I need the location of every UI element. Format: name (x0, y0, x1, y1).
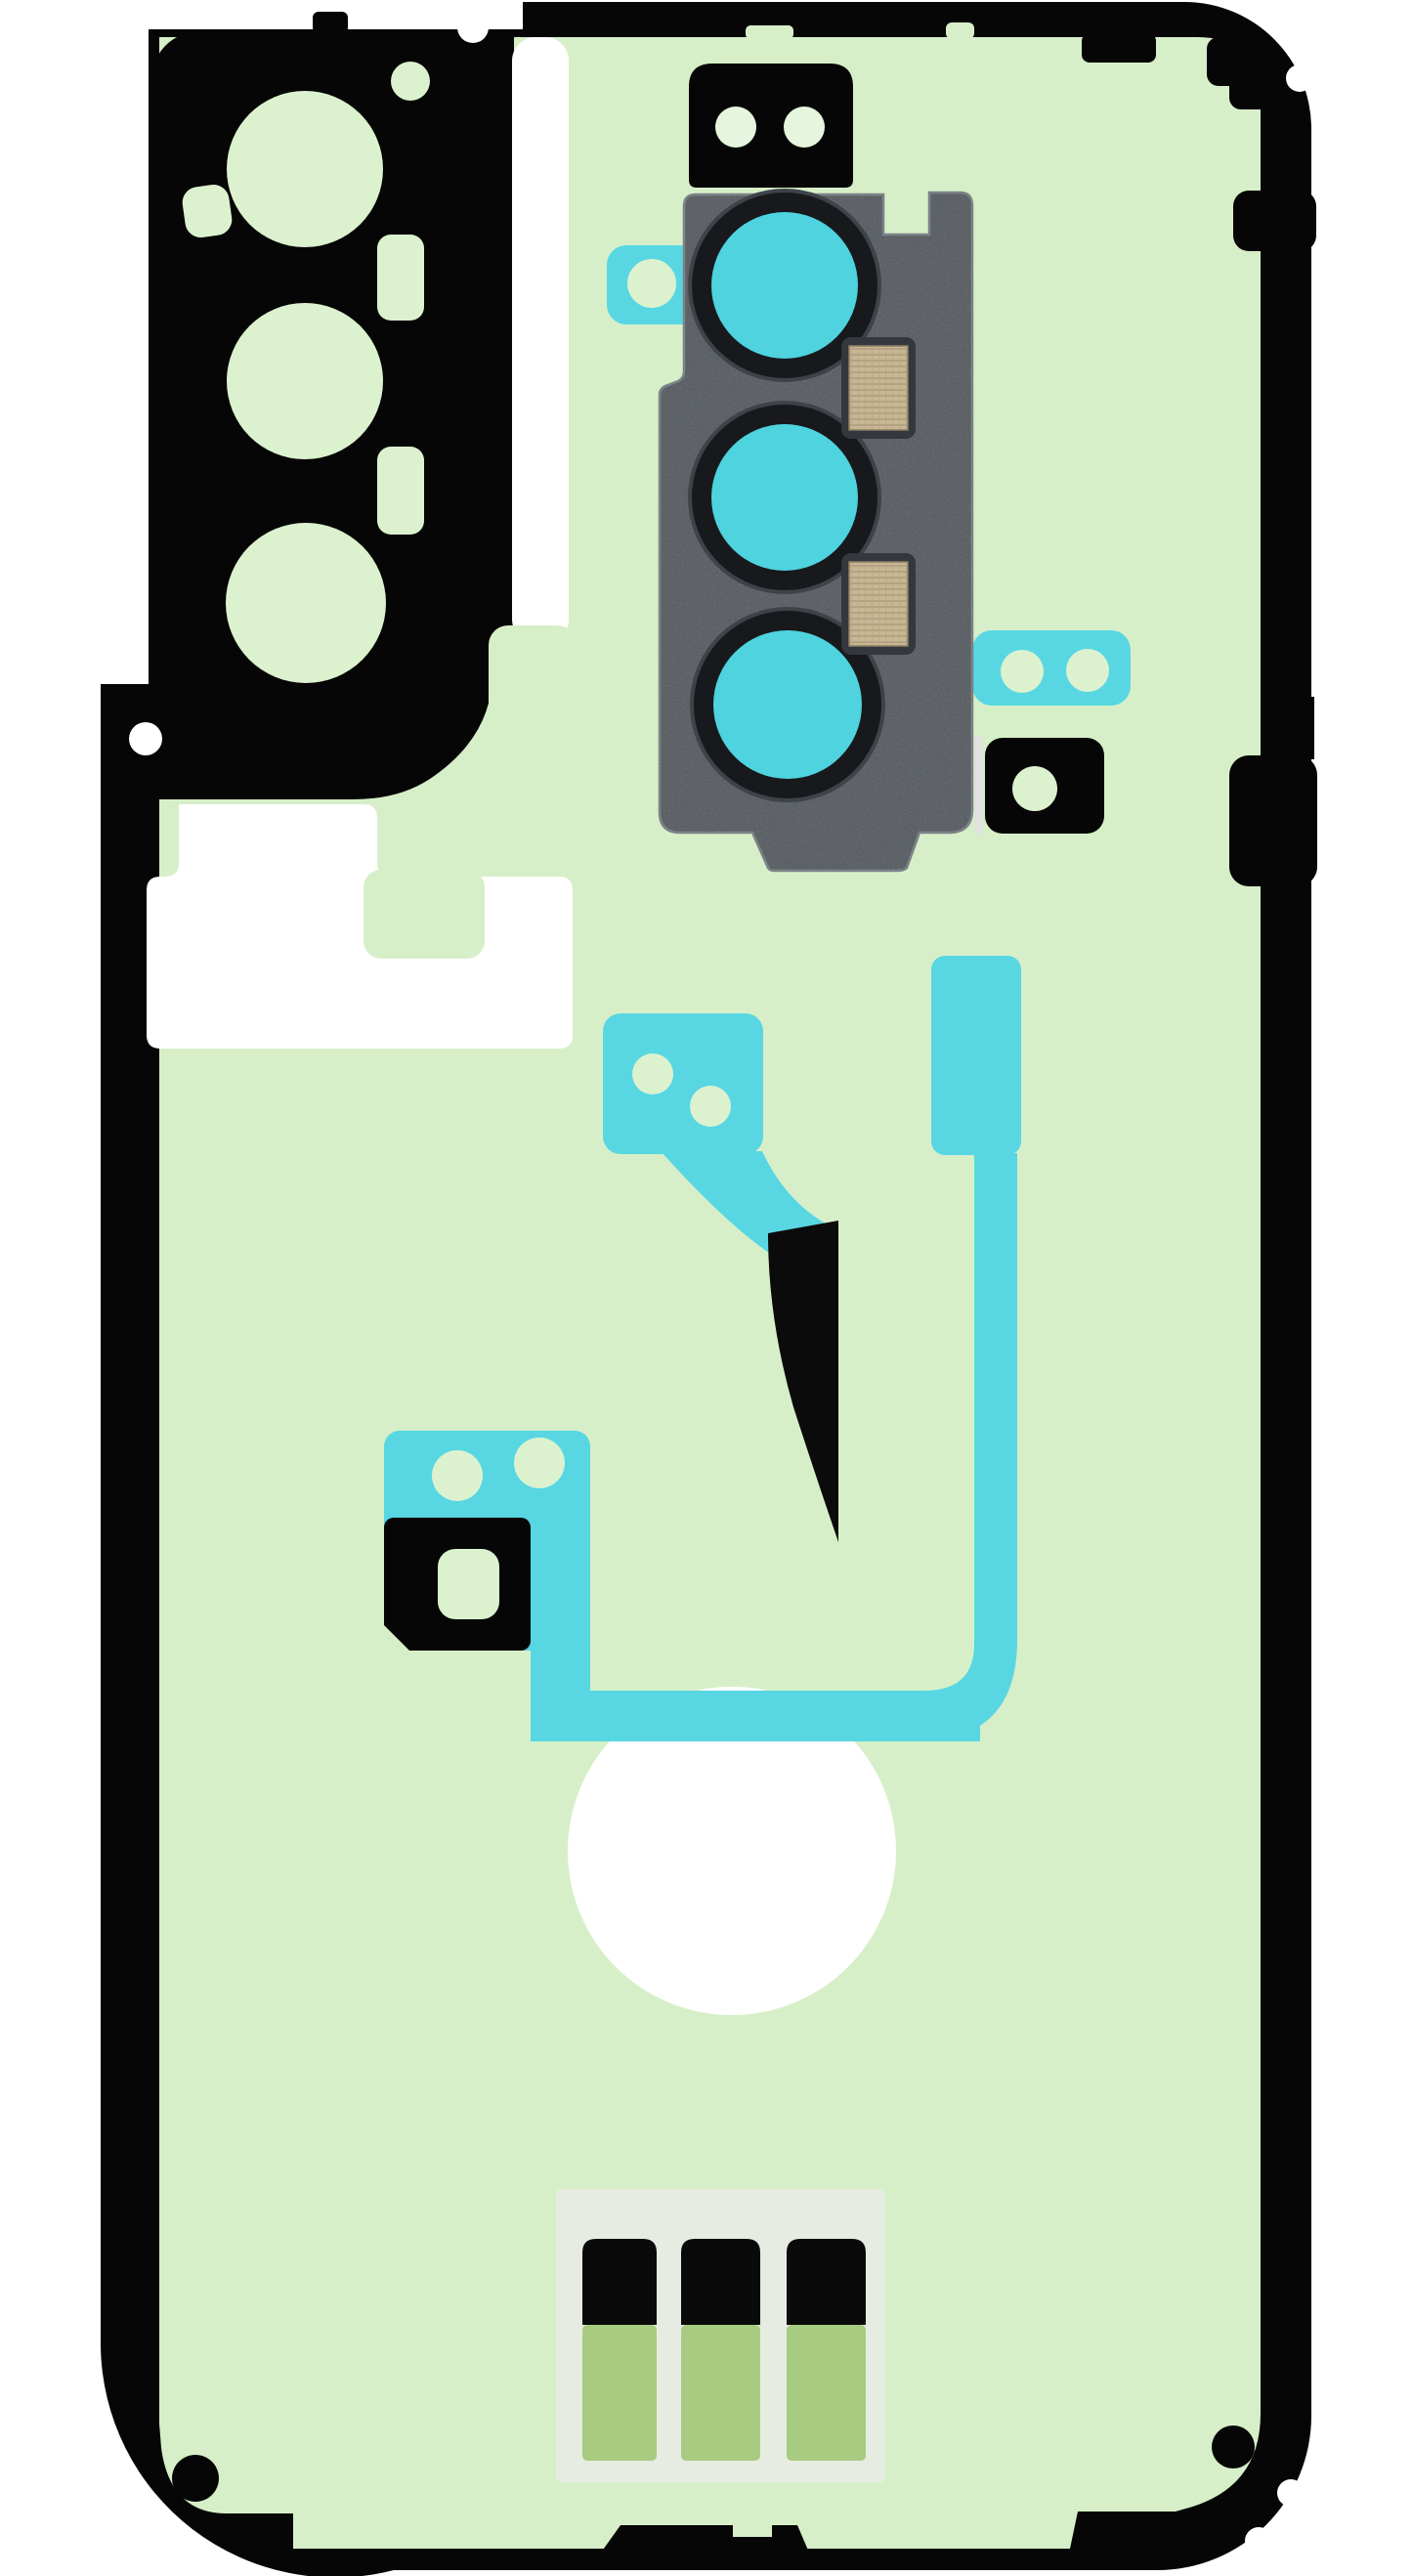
lens-glass (711, 212, 858, 359)
sticker-dot (715, 107, 756, 148)
corner-knob (172, 2455, 219, 2502)
adhesive-strip (681, 2239, 760, 2461)
flex-tab-right (972, 630, 1131, 706)
edge-nick (1245, 2527, 1272, 2555)
flex-hole (1066, 649, 1109, 692)
sticker-dot (784, 107, 825, 148)
top-edge-bump (746, 25, 793, 39)
black-spacer-lower-left (384, 1518, 531, 1651)
black-spacer-right (985, 738, 1104, 834)
camera-glass-sticker (689, 64, 853, 188)
flex-hole (514, 1438, 565, 1488)
edge-notch (457, 12, 489, 43)
sensor-hole (181, 183, 235, 239)
film-tongue (364, 870, 485, 959)
lens-hole (227, 303, 383, 459)
right-edge-notch (1233, 191, 1316, 251)
corner-knob (1212, 2426, 1255, 2469)
camera-lens-module (635, 166, 997, 889)
white-slot-cutout (512, 37, 569, 643)
right-edge-notch (1229, 755, 1317, 886)
lens-glass (713, 630, 862, 779)
left-white-gap (0, 0, 149, 684)
edge-nick (1277, 2479, 1305, 2507)
corner-step (1229, 61, 1272, 109)
edge-nick (142, 2527, 169, 2555)
film-strip (489, 625, 577, 884)
island-border-column (489, 29, 514, 655)
top-edge-tab (1082, 33, 1156, 63)
bottom-edge-tab (601, 2525, 809, 2553)
flex-hole (432, 1450, 483, 1501)
spacer-hole (438, 1549, 499, 1619)
flex-hole (690, 1086, 731, 1127)
mesh-contact (841, 337, 916, 439)
edge-notch (129, 722, 162, 755)
spacer-hole (1012, 766, 1057, 811)
lens-glass (711, 424, 858, 571)
flex-hole (1001, 650, 1044, 693)
right-edge-step (1262, 697, 1314, 759)
bottom-tab-notch (733, 2525, 772, 2537)
bottom-strip-panel (556, 2189, 885, 2482)
flash-hole (391, 62, 430, 101)
camera-island-cutout (129, 12, 514, 799)
top-edge-bump (946, 22, 974, 39)
island-top-bump (313, 12, 348, 33)
photo-canvas (0, 0, 1412, 2576)
lens-hole (227, 91, 383, 247)
flex-hole (632, 1053, 673, 1095)
module-edge-highlight (974, 736, 983, 834)
mesh-contact (841, 553, 916, 655)
edge-nick (1286, 64, 1313, 92)
edge-nick (107, 2489, 137, 2518)
adhesive-strip (787, 2239, 866, 2461)
lens-hole (226, 523, 386, 683)
mic-hole (377, 235, 424, 321)
adhesive-strip (582, 2239, 657, 2461)
mic-hole (377, 447, 424, 535)
flex-hole (627, 259, 676, 308)
